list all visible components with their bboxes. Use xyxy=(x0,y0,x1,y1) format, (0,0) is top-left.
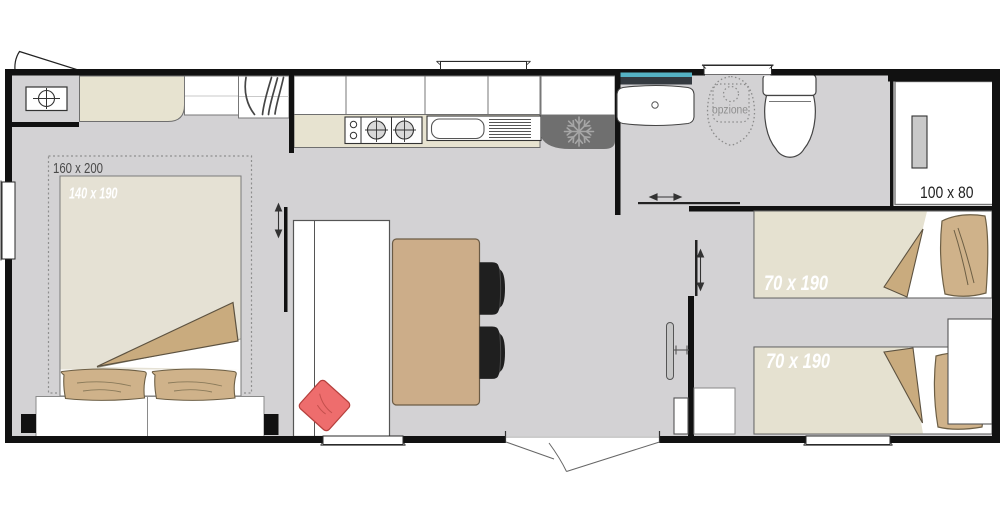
svg-text:160 x 200: 160 x 200 xyxy=(53,161,103,177)
svg-text:70 x 190: 70 x 190 xyxy=(766,350,830,373)
svg-text:opzione: opzione xyxy=(712,105,748,117)
svg-text:100 x 80: 100 x 80 xyxy=(920,184,974,202)
svg-text:140 x 190: 140 x 190 xyxy=(69,186,118,203)
svg-text:70 x 190: 70 x 190 xyxy=(764,272,828,295)
